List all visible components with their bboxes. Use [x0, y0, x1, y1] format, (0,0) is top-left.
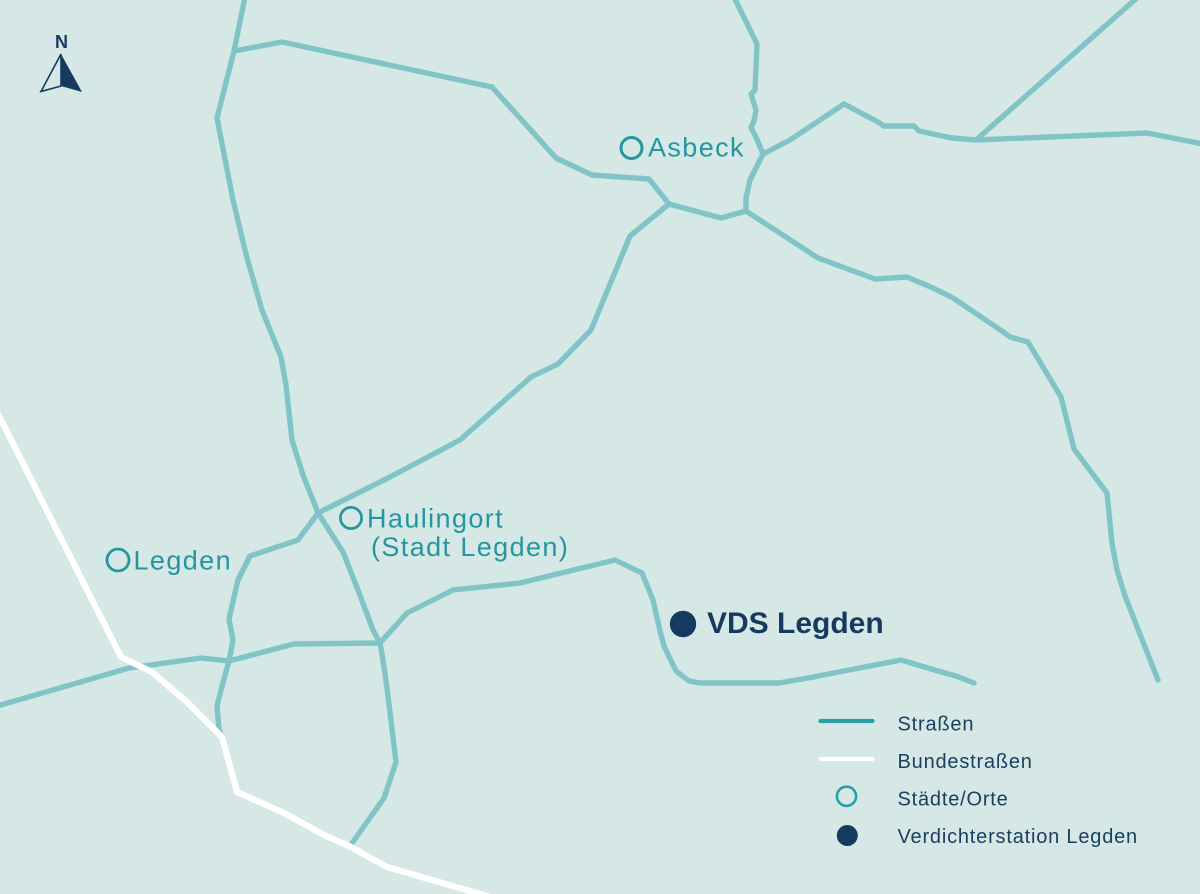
svg-text:Straßen: Straßen [898, 714, 975, 736]
svg-text:Verdichterstation Legden: Verdichterstation Legden [898, 826, 1138, 848]
svg-text:Asbeck: Asbeck [648, 133, 745, 163]
svg-text:VDS Legden: VDS Legden [707, 607, 884, 640]
svg-text:N: N [55, 32, 68, 52]
svg-text:Legden: Legden [134, 546, 233, 576]
svg-text:Bundestraßen: Bundestraßen [898, 751, 1033, 773]
svg-text:Städte/Orte: Städte/Orte [898, 788, 1009, 810]
svg-text:Haulingort: Haulingort [367, 504, 504, 534]
svg-text:(Stadt Legden): (Stadt Legden) [371, 532, 569, 562]
